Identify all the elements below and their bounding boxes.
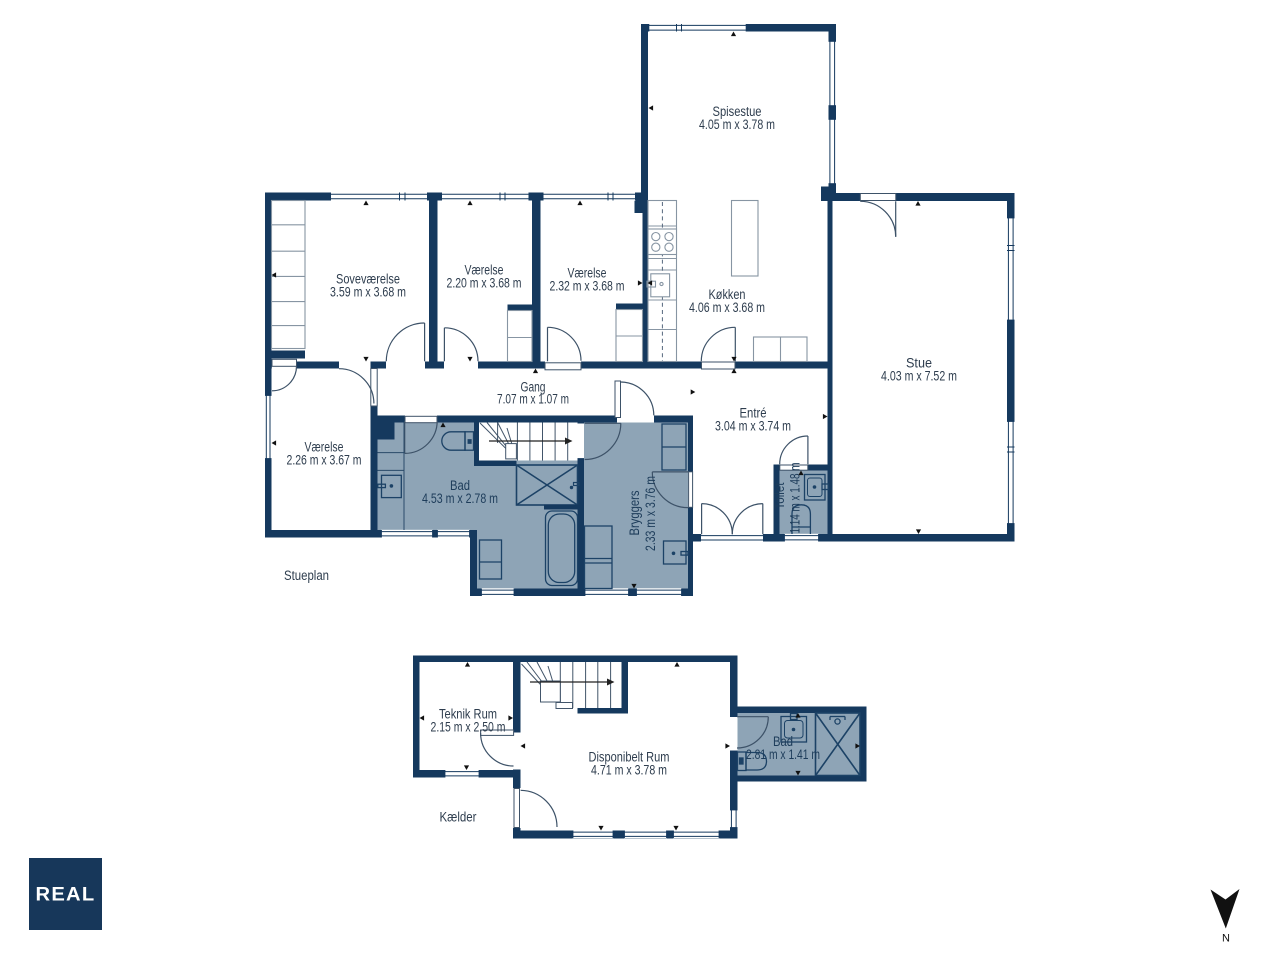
svg-text:2.33 m x 3.76 m: 2.33 m x 3.76 m xyxy=(643,476,658,551)
svg-text:2.15 m x 2.50 m: 2.15 m x 2.50 m xyxy=(431,720,506,735)
svg-text:7.07 m x 1.07 m: 7.07 m x 1.07 m xyxy=(497,392,569,407)
svg-text:4.03 m x 7.52 m: 4.03 m x 7.52 m xyxy=(881,369,957,384)
svg-text:N: N xyxy=(1222,933,1230,945)
svg-text:Bryggers: Bryggers xyxy=(627,490,642,535)
svg-text:2.32 m x 3.68 m: 2.32 m x 3.68 m xyxy=(550,279,625,294)
svg-text:4.71 m x 3.78 m: 4.71 m x 3.78 m xyxy=(591,763,667,778)
svg-text:2.20 m x 3.68 m: 2.20 m x 3.68 m xyxy=(447,276,522,291)
svg-text:Stueplan: Stueplan xyxy=(284,568,329,583)
svg-text:Kælder: Kælder xyxy=(440,810,477,825)
svg-text:2.26 m x 3.67 m: 2.26 m x 3.67 m xyxy=(287,453,362,468)
svg-text:3.04 m x 3.74 m: 3.04 m x 3.74 m xyxy=(715,419,791,434)
svg-text:REAL: REAL xyxy=(36,885,96,906)
svg-text:4.53 m x 2.78 m: 4.53 m x 2.78 m xyxy=(422,491,498,506)
svg-text:4.05 m x 3.78 m: 4.05 m x 3.78 m xyxy=(699,117,775,132)
svg-text:4.06 m x 3.68 m: 4.06 m x 3.68 m xyxy=(689,300,765,315)
svg-text:Toilet: Toilet xyxy=(772,482,787,509)
svg-text:2.81 m x 1.41 m: 2.81 m x 1.41 m xyxy=(746,747,820,762)
svg-text:3.59 m x 3.68 m: 3.59 m x 3.68 m xyxy=(330,285,406,300)
